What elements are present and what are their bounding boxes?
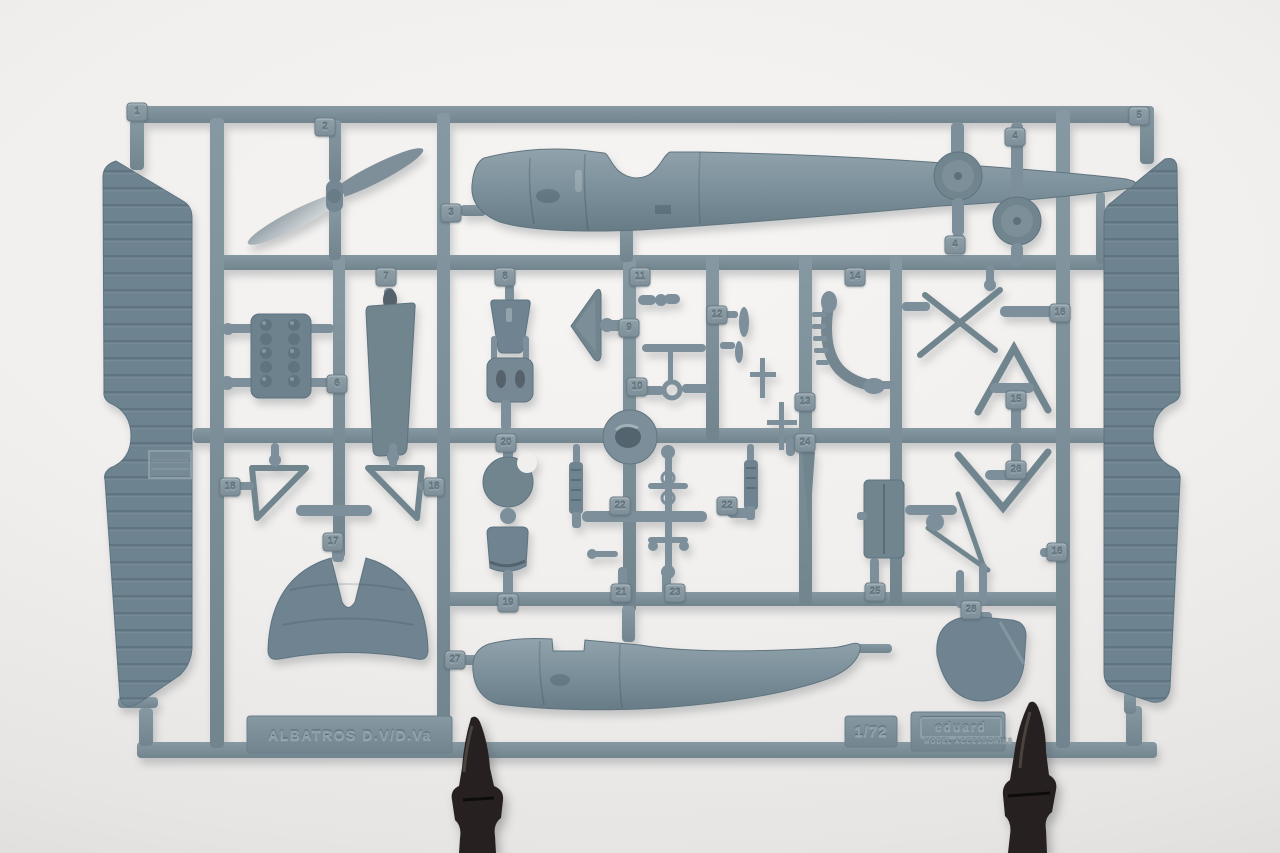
part-number-tag: 8 — [495, 268, 516, 287]
lower-fuselage-tail-stub — [856, 644, 892, 653]
brand-subtext: MODEL ACCESSORIES — [924, 738, 1013, 745]
vertical-rail-3 — [706, 255, 719, 440]
exhaust-part — [812, 291, 896, 394]
nameplate-text: ALBATROS D.V/D.Va — [268, 727, 432, 743]
part-number-tag: 4 — [945, 236, 966, 255]
part-number-tag: 23 — [665, 584, 686, 603]
upper-wing-part — [103, 161, 192, 706]
bottom-left-corner — [139, 708, 153, 746]
part-number-tag: 22 — [610, 497, 631, 516]
part-number-tag: 13 — [795, 393, 816, 412]
part-number-tag: 25 — [865, 583, 886, 602]
part-number-tag: 4 — [1005, 128, 1026, 147]
sprue-photo — [0, 0, 1280, 853]
part-number-tag: 11 — [630, 268, 651, 287]
part-number-tag: 18 — [424, 478, 445, 497]
part-number-tag: 3 — [441, 204, 462, 223]
lower-fuselage-part — [473, 639, 861, 710]
stand-clip-left — [452, 717, 503, 853]
part-number-tag: 14 — [845, 268, 866, 287]
right-vertical-rail — [1056, 110, 1070, 748]
stabilizer-part — [268, 540, 428, 659]
left-vertical-rail — [210, 118, 224, 748]
part-number-tag: 20 — [496, 434, 517, 453]
part-number-tag: 28 — [961, 601, 982, 620]
top-rail — [130, 106, 1154, 123]
part-number-tag: 10 — [627, 378, 648, 397]
cone-part — [487, 284, 533, 430]
wing-radiator-detail — [149, 451, 191, 478]
cowl-ring-part — [603, 410, 657, 464]
part-number-tag: 26 — [1006, 461, 1027, 480]
part-number-tag: 7 — [376, 268, 397, 287]
lower-wing-part — [1104, 158, 1180, 702]
part-number-tag: 5 — [1129, 107, 1150, 126]
part-number-tag: 27 — [445, 651, 466, 670]
engine-part — [220, 314, 334, 398]
lower-fuselage-top-stub — [622, 606, 635, 642]
headrest-parts — [483, 443, 537, 598]
part-number-tag: 15 — [1006, 391, 1027, 410]
upper-mid-rail — [214, 255, 1108, 270]
part-number-tag: 17 — [323, 533, 344, 552]
part-number-tag: 18 — [220, 478, 241, 497]
part-number-tag: 1 — [127, 103, 148, 122]
bracket-part — [487, 358, 533, 402]
part-number-tag: 16 — [1050, 304, 1071, 323]
sprue-frame — [103, 106, 1180, 758]
part-number-tag: 6 — [327, 375, 348, 394]
part-number-tag: 9 — [619, 319, 640, 338]
part-number-tag: 19 — [498, 594, 519, 613]
part-number-tag: 16 — [1047, 543, 1068, 562]
part-number-tag: 12 — [707, 306, 728, 325]
part-number-tag: 22 — [717, 497, 738, 516]
tailplane-tip-part — [571, 289, 625, 360]
brand-logo: eduard — [920, 717, 1002, 738]
stand-clip-right — [1003, 702, 1056, 853]
wing-left-top-stub — [130, 120, 144, 170]
brand-text: eduard — [922, 719, 1000, 735]
part-number-tag: 24 — [795, 434, 816, 453]
propeller-bottom-stub — [329, 206, 341, 260]
vertical-rail-4 — [799, 255, 812, 605]
fin-part — [366, 288, 415, 456]
part-number-tag: 2 — [315, 118, 336, 137]
scale-text: 1/72 — [854, 724, 887, 741]
part-number-tag: 21 — [611, 584, 632, 603]
machine-gun-parts — [569, 444, 758, 595]
